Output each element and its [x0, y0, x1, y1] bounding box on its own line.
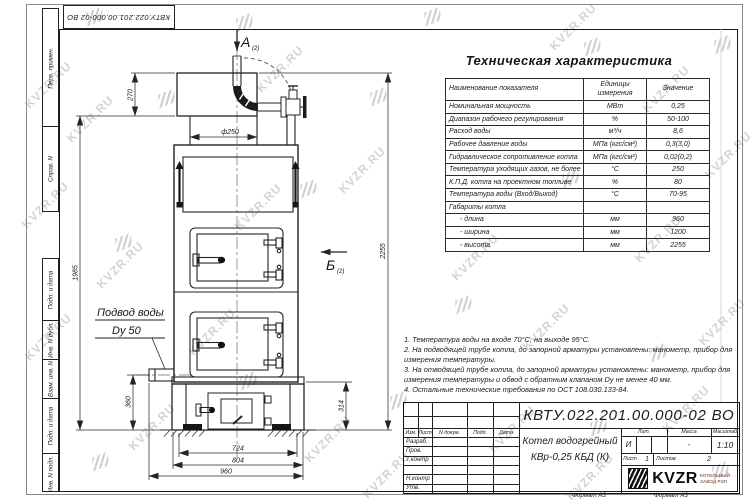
scale-value: 1:10 — [711, 436, 739, 453]
title-block: Изм. Лист N докум. Подп. Дата Разраб. Пр… — [403, 402, 740, 494]
role-tkontr: Т.контр — [404, 456, 432, 465]
table-row: Температура воды (Вход/Выход)°С70-95 — [446, 189, 710, 202]
doc-number: КВТУ.022.201.00.000-02 ВО — [519, 403, 739, 428]
technical-notes: 1. Температура воды на входе 70°С, на вы… — [404, 335, 734, 396]
margin-strip-bottom: Подп. и датаИнв. N дубл.Взам. инв. NПодп… — [42, 258, 59, 492]
margin-strip-top: Перв. примен.Справ. N — [42, 8, 59, 212]
scale-header: Масштаб — [711, 428, 739, 436]
role-nkontr: Н.контр — [404, 474, 432, 483]
view-label-a: А — [240, 34, 250, 50]
product-name-line2: КВр-0,25 КБД (К) — [531, 452, 609, 463]
table-row: Гидравлическое сопротивление котлаМПа (к… — [446, 151, 710, 164]
table-row: - ширинамм1200 — [446, 226, 710, 239]
margin-cell: Инв. N дубл. — [43, 321, 58, 360]
role-empty — [404, 465, 432, 474]
col-list: Лист — [418, 428, 432, 437]
margin-cell: Взам. инв. N — [43, 360, 58, 399]
sheet-label: Лист — [623, 456, 637, 462]
valve — [281, 86, 307, 118]
dim-360: 360 — [126, 396, 133, 408]
dim-960: 960 — [220, 469, 232, 476]
table-row: - длинамм960 — [446, 214, 710, 227]
product-name-line1: Котел водогрейный — [522, 436, 617, 447]
note-item: 1. Температура воды на входе 70°С, на вы… — [404, 335, 734, 344]
table-row: Температура уходящих газов, не более°С25… — [446, 163, 710, 176]
kvzr-logo-subtitle: КОТЕЛЬНЫЙ ЗАВОД РЭП — [700, 465, 738, 493]
margin-cell: Подп. и дата — [43, 259, 58, 321]
product-name: Котел водогрейный КВр-0,25 КБД (К) — [519, 428, 621, 493]
note-item: 3. На отводящей трубе котла, до запорной… — [404, 365, 734, 384]
water-inlet-leader — [152, 338, 165, 369]
panel-pins — [176, 161, 300, 208]
corner-stamp-text: КВТУ.022.201.00.000-02 ВО — [67, 13, 170, 22]
dim-804: 804 — [232, 458, 244, 465]
role-prov: Пров. — [404, 446, 432, 455]
table-row: Диапазон рабочего регулирования%50-100 — [446, 113, 710, 126]
col-izm: Изм. — [404, 428, 418, 437]
lower-door — [190, 312, 283, 377]
col-header-units: Единицы измерения — [584, 79, 647, 101]
mass-header: Масса — [667, 428, 711, 436]
role-utv: Утв. — [404, 484, 432, 493]
water-inlet-label-line2: Dy 50 — [112, 325, 142, 337]
drawing-sheet: KVZR.RUKVZR.RUKVZR.RUKVZR.RUKVZR.RUKVZR.… — [0, 0, 750, 500]
dim-270: 270 — [128, 89, 135, 102]
sheets-label: Листов — [656, 456, 676, 462]
margin-cell: Подп. и дата — [43, 399, 58, 454]
margin-cell: Перв. примен. — [43, 9, 58, 127]
table-row: Габариты котла — [446, 201, 710, 214]
centerlines — [137, 48, 237, 458]
col-podp: Подп. — [467, 428, 493, 437]
table-row: К.П.Д. котла на проектном топливе%80 — [446, 176, 710, 189]
col-header-name: Наименование показателя — [446, 79, 584, 101]
dim-2255: 2255 — [380, 243, 387, 260]
table-row: Рабочее давление водыМПа (кгс/см²)0,3(3,… — [446, 138, 710, 151]
kvzr-logo-subtitle-line2: ЗАВОД РЭП — [700, 479, 727, 485]
tech-table-header: Наименование показателя Единицы измерени… — [446, 79, 710, 101]
table-row: - высотамм2255 — [446, 239, 710, 252]
margin-cell: Справ. N — [43, 127, 58, 211]
note-item: 4. Остальные технические требования по О… — [404, 385, 734, 394]
door-swing-arc — [244, 58, 293, 99]
view-label-b: Б — [326, 257, 335, 273]
role-razrab: Разраб. — [404, 437, 432, 446]
table-row: Расход водым³/ч8,6 — [446, 126, 710, 139]
lit-header: Лит. — [621, 428, 667, 436]
sheets-value: 2 — [707, 456, 711, 463]
kvzr-logo-icon — [628, 468, 648, 489]
sheet-value: 1 — [645, 456, 649, 463]
tech-table-title: Техническая характеристика — [445, 53, 693, 68]
view-label-a-sub: (2) — [252, 46, 259, 52]
ash-door — [196, 393, 271, 429]
lit-value: И — [621, 436, 636, 453]
corner-stamp: КВТУ.022.201.00.000-02 ВО — [63, 5, 175, 29]
dimension-labels: ф250 270 1985 2255 360 314 724 804 960 — [73, 89, 388, 475]
sheet-cell: Лист 1 — [621, 453, 653, 465]
mass-value: - — [667, 436, 711, 453]
table-row: Номинальная мощностьМВт0,25 — [446, 101, 710, 114]
col-header-value: Значение — [647, 79, 710, 101]
col-ndocum: N докум. — [432, 428, 467, 437]
kvzr-logo-text: KVZR — [650, 465, 700, 493]
col-data: Дата — [493, 428, 519, 437]
water-inlet-label-line1: Подвод воды — [97, 307, 164, 319]
dim-1985: 1985 — [73, 265, 80, 281]
note-item: 2. На подводящей трубе котла, до запорно… — [404, 345, 734, 364]
dim-phi250: ф250 — [221, 129, 239, 136]
dim-724: 724 — [232, 446, 244, 453]
tech-table: Наименование показателя Единицы измерени… — [445, 78, 710, 252]
dim-314: 314 — [339, 400, 346, 412]
sheets-cell: Листов 2 — [653, 453, 739, 465]
ground-hatch — [164, 430, 309, 437]
upper-door — [190, 228, 283, 288]
margin-cell: Инв. N подл. — [43, 454, 58, 493]
view-label-b-sub: (2) — [337, 269, 344, 275]
